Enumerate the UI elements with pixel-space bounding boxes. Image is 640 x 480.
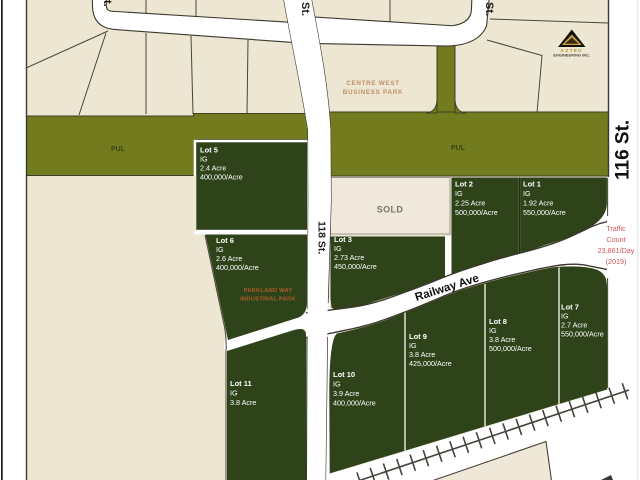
svg-text:t.: t. <box>101 0 113 7</box>
svg-text:116 St.: 116 St. <box>613 120 634 180</box>
svg-text:Lot 7: Lot 7 <box>561 303 579 312</box>
svg-text:2.25 Acre: 2.25 Acre <box>455 199 485 208</box>
svg-text:IG: IG <box>523 189 531 198</box>
svg-text:Lot 5: Lot 5 <box>200 146 218 155</box>
svg-text:Lot 6: Lot 6 <box>216 236 234 245</box>
svg-text:2.7 Acre: 2.7 Acre <box>561 321 587 330</box>
svg-text:550,000/Acre: 550,000/Acre <box>523 208 566 217</box>
svg-text:Lot 11: Lot 11 <box>230 379 252 388</box>
svg-text:550,000/Acre: 550,000/Acre <box>561 330 604 339</box>
svg-text:INDUSTRIAL PARK: INDUSTRIAL PARK <box>240 297 296 303</box>
svg-text:425,000/Acre: 425,000/Acre <box>409 359 452 368</box>
svg-text:IG: IG <box>334 244 342 253</box>
svg-text:1.92 Acre: 1.92 Acre <box>523 199 553 208</box>
svg-text:PUL: PUL <box>451 145 466 152</box>
svg-text:500,000/Acre: 500,000/Acre <box>455 208 498 217</box>
svg-text:IG: IG <box>455 189 463 198</box>
svg-text:450,000/Acre: 450,000/Acre <box>334 262 377 271</box>
svg-text:Count: Count <box>606 235 625 244</box>
svg-text:ENGINEERING INC.: ENGINEERING INC. <box>553 54 590 58</box>
svg-text:118 St.: 118 St. <box>316 221 328 254</box>
svg-text:Lot 10: Lot 10 <box>333 370 355 379</box>
svg-text:400,000/Acre: 400,000/Acre <box>200 173 243 182</box>
svg-text:2.4 Acre: 2.4 Acre <box>200 164 226 173</box>
svg-text:CENTRE WEST: CENTRE WEST <box>346 80 400 87</box>
svg-text:400,000/Acre: 400,000/Acre <box>333 399 376 408</box>
svg-text:SOLD: SOLD <box>377 205 404 215</box>
svg-text:3.8 Acre: 3.8 Acre <box>489 335 515 344</box>
svg-text:Lot 2: Lot 2 <box>455 180 473 189</box>
svg-text:2.73 Acre: 2.73 Acre <box>334 253 364 262</box>
svg-text:IG: IG <box>216 245 224 254</box>
svg-text:AZTEC: AZTEC <box>561 48 583 53</box>
svg-text:400,000/Acre: 400,000/Acre <box>216 263 259 272</box>
svg-text:PUL: PUL <box>111 146 126 153</box>
svg-text:3.8 Acre: 3.8 Acre <box>409 350 435 359</box>
svg-text:IG: IG <box>230 389 238 398</box>
svg-text:IG: IG <box>333 380 341 389</box>
svg-text:3.9 Acre: 3.9 Acre <box>333 389 359 398</box>
svg-text:St.: St. <box>299 2 311 16</box>
svg-text:2.6 Acre: 2.6 Acre <box>216 254 242 263</box>
svg-text:BUSINESS PARK: BUSINESS PARK <box>343 89 403 96</box>
svg-text:3.8 Acre: 3.8 Acre <box>230 398 256 407</box>
svg-text:Lot 1: Lot 1 <box>523 180 541 189</box>
svg-text:Traffic: Traffic <box>606 224 626 233</box>
svg-text:Lot 9: Lot 9 <box>409 332 427 341</box>
svg-text:IG: IG <box>200 155 208 164</box>
svg-text:Lot 8: Lot 8 <box>489 317 507 326</box>
svg-text:IG: IG <box>561 312 569 321</box>
svg-text:Lot 3: Lot 3 <box>334 235 352 244</box>
svg-text:IG: IG <box>409 341 417 350</box>
svg-text:PARKLAND WAY: PARKLAND WAY <box>244 288 293 294</box>
svg-text:St.: St. <box>483 2 495 16</box>
svg-text:(2019): (2019) <box>606 257 627 266</box>
svg-text:23,861/Day: 23,861/Day <box>598 246 635 255</box>
svg-text:500,000/Acre: 500,000/Acre <box>489 344 532 353</box>
svg-text:IG: IG <box>489 326 497 335</box>
